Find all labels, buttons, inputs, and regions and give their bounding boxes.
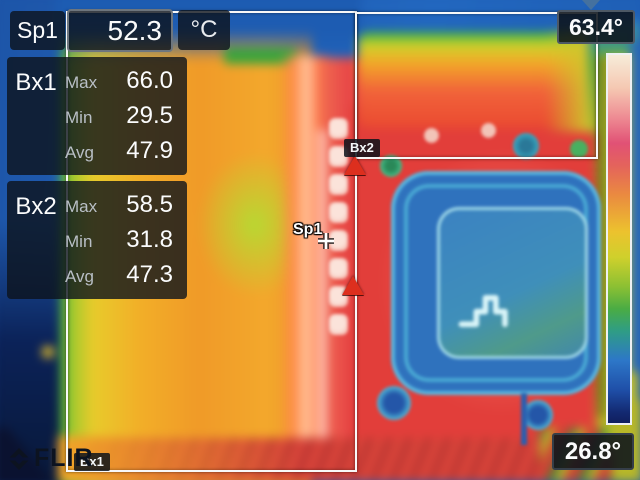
stat-label: Max — [65, 73, 97, 93]
stat-label: Avg — [65, 143, 94, 163]
scale-max-indicator-icon — [582, 0, 600, 10]
stat-value: 58.5 — [126, 191, 173, 219]
stat-label: Avg — [65, 267, 94, 287]
scale-max-value[interactable]: 63.4° — [557, 10, 635, 44]
thermal-camera-screen: Sp1 Bx1 Bx2 Sp1 52.3 °C Bx1 Max 66.0 Min… — [0, 0, 640, 480]
unit-label: °C — [178, 10, 230, 50]
temperature-colorbar[interactable] — [606, 53, 632, 425]
stat-row: Max 66.0 — [65, 67, 173, 95]
hotspot-marker-icon — [344, 156, 366, 175]
screw-blob — [523, 400, 553, 430]
stat-row: Min 29.5 — [65, 102, 173, 130]
flir-gem-icon — [7, 447, 31, 471]
stat-row: Avg 47.9 — [65, 137, 173, 165]
box-panel-bx2: Bx2 Max 58.5 Min 31.8 Avg 47.3 — [7, 181, 187, 299]
stat-row: Avg 47.3 — [65, 261, 173, 289]
cable-blob — [521, 393, 527, 445]
stat-value: 31.8 — [126, 226, 173, 254]
stat-label: Min — [65, 108, 92, 128]
hotspot-marker-icon — [342, 276, 364, 295]
spot-id-label: Sp1 — [10, 11, 65, 50]
stat-label: Max — [65, 197, 97, 217]
stat-value: 29.5 — [126, 102, 173, 130]
scale-min-value[interactable]: 26.8° — [552, 433, 634, 470]
box-id-label: Bx1 — [7, 57, 65, 175]
stat-row: Max 58.5 — [65, 191, 173, 219]
water-block-plate — [437, 207, 588, 359]
box-panel-bx1: Bx1 Max 66.0 Min 29.5 Avg 47.9 — [7, 57, 187, 175]
flir-logo-text: FLIR — [34, 444, 94, 473]
pulse-logo-icon — [458, 288, 513, 333]
stat-row: Min 31.8 — [65, 226, 173, 254]
stat-label: Min — [65, 232, 92, 252]
stat-value: 47.3 — [126, 261, 173, 289]
screw-blob — [377, 386, 411, 420]
flir-logo: FLIR — [7, 444, 94, 473]
stat-value: 66.0 — [126, 67, 173, 95]
stat-value: 47.9 — [126, 137, 173, 165]
box-tag-bx2[interactable]: Bx2 — [344, 139, 380, 157]
spot-value: 52.3 — [67, 9, 173, 52]
box-id-label: Bx2 — [7, 181, 65, 299]
spot-crosshair-icon[interactable] — [316, 231, 336, 251]
